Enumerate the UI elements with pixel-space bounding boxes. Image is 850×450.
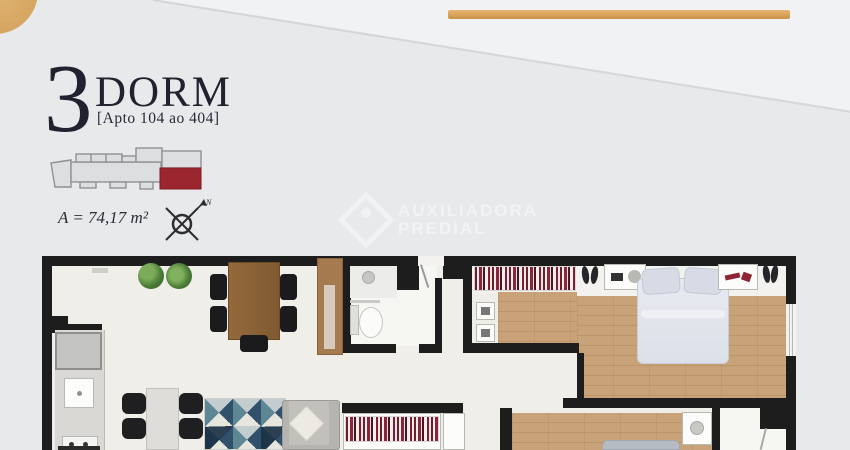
bathroom-shelf bbox=[350, 300, 380, 303]
toilet-bowl bbox=[359, 307, 383, 338]
building-top-strip bbox=[76, 154, 122, 162]
area-label: A = 74,17 m² bbox=[58, 208, 148, 228]
master-shoes-2 bbox=[762, 265, 780, 285]
kitchen-sink bbox=[64, 378, 94, 408]
wall-master-bottom bbox=[563, 398, 788, 408]
counter-edge bbox=[58, 446, 100, 450]
island-stool-2 bbox=[122, 418, 146, 439]
building-main-bar bbox=[71, 162, 161, 182]
island-stool-1 bbox=[122, 393, 146, 414]
fridge bbox=[55, 332, 102, 370]
wall-closet-bottom bbox=[463, 343, 579, 353]
building-right-gray bbox=[162, 151, 201, 168]
floor-plan-page: 3 DORM [Apto 104 ao 404] A = 74,17 m² N bbox=[0, 0, 850, 450]
closet-hanging-clothes bbox=[474, 266, 576, 291]
plant-1 bbox=[138, 263, 164, 289]
watermark-diamond-icon bbox=[338, 192, 395, 249]
watermark-line1: AUXILIADORA bbox=[398, 202, 538, 220]
geometric-rug bbox=[204, 398, 286, 450]
closet-drawer-1 bbox=[476, 302, 495, 320]
dining-chair-2 bbox=[210, 306, 227, 332]
gold-accent-bar bbox=[448, 10, 790, 19]
hall-cabinet bbox=[317, 258, 343, 355]
wall-bedroom3-stub bbox=[712, 408, 720, 450]
master-bed bbox=[637, 266, 729, 364]
master-bench bbox=[718, 264, 758, 290]
toilet-tank bbox=[350, 305, 359, 335]
dining-chair-1 bbox=[210, 274, 227, 300]
shower-head bbox=[362, 271, 375, 284]
highlighted-unit bbox=[160, 168, 201, 189]
duct-shaft bbox=[397, 266, 419, 290]
dining-chair-4 bbox=[280, 306, 297, 332]
pillow-2 bbox=[683, 267, 723, 296]
island-stool-4 bbox=[179, 418, 203, 439]
wall-closet-left bbox=[463, 256, 472, 353]
gold-corner-shape bbox=[0, 0, 38, 34]
master-shoes-1 bbox=[580, 265, 600, 287]
wall-bedroom2-top bbox=[342, 403, 463, 413]
wall-bathroom-bottom-a bbox=[343, 344, 396, 353]
wall-bathroom-right bbox=[435, 278, 442, 353]
apartment-floor-plan bbox=[42, 256, 796, 450]
shower-area bbox=[350, 266, 397, 298]
wall-left bbox=[42, 256, 52, 450]
vent-mark bbox=[92, 268, 108, 273]
wall-corner-fill bbox=[760, 406, 788, 429]
compass-icon: N bbox=[156, 196, 212, 250]
key-plan bbox=[48, 147, 204, 195]
bedroom2-hanging-clothes bbox=[345, 416, 439, 442]
building-bump bbox=[122, 156, 136, 162]
sofa bbox=[282, 400, 340, 450]
watermark: AUXILIADORA PREDIAL bbox=[346, 200, 538, 240]
dining-table bbox=[228, 262, 280, 340]
building-tab-3 bbox=[140, 182, 153, 189]
pillow-1 bbox=[641, 267, 681, 296]
wall-bedroom-divider bbox=[500, 408, 512, 450]
bedroom3-nightstand bbox=[682, 412, 712, 445]
building-tab-2 bbox=[110, 182, 126, 188]
bedroom2-side-table bbox=[443, 413, 465, 450]
apartment-range: [Apto 104 ao 404] bbox=[97, 110, 220, 128]
watermark-line2: PREDIAL bbox=[398, 220, 538, 238]
building-left-block bbox=[51, 160, 71, 187]
entry-jamb bbox=[443, 266, 463, 279]
master-window bbox=[786, 302, 796, 358]
dorm-count: 3 bbox=[44, 50, 93, 147]
building-tower bbox=[136, 148, 162, 162]
closet-room-floor bbox=[498, 292, 577, 344]
closet-drawer-2 bbox=[476, 324, 495, 342]
plant-2 bbox=[166, 263, 192, 289]
dining-chair-5 bbox=[240, 335, 268, 352]
building-tab-1 bbox=[80, 182, 96, 188]
island-stool-3 bbox=[179, 393, 203, 414]
wall-master-left bbox=[577, 353, 584, 398]
compass-north-label: N bbox=[205, 198, 212, 207]
kitchen-island bbox=[146, 388, 179, 450]
bedroom3-bed bbox=[602, 440, 680, 450]
dining-chair-3 bbox=[280, 274, 297, 300]
